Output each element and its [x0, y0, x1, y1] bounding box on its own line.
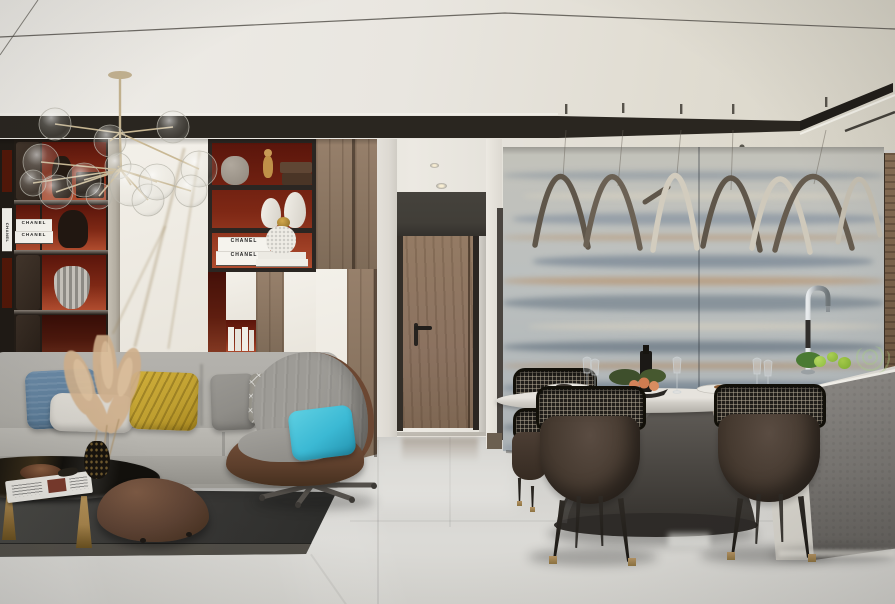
lower-wood — [256, 272, 284, 354]
dining-chair-front-left — [536, 386, 646, 572]
produce-cabbage — [852, 346, 892, 374]
ottoman-foot — [140, 538, 146, 543]
chair-leg — [550, 500, 567, 561]
door-floor-reflection — [402, 438, 478, 462]
chair-leg — [616, 498, 633, 563]
decor-box-stack — [282, 173, 312, 185]
lower-marble — [284, 272, 316, 354]
book-spine-row — [228, 327, 234, 351]
door-handle-lever — [414, 326, 432, 330]
magazine-photo — [47, 478, 66, 493]
chair-leg — [796, 496, 812, 559]
corner-baseboard — [487, 433, 502, 449]
decor-textured-vase — [266, 226, 296, 254]
ottoman-foot — [186, 532, 192, 537]
book-spine-row — [235, 329, 241, 351]
leg-tip — [530, 507, 535, 512]
leg-tip — [549, 556, 557, 564]
glass-globe-chandelier — [0, 55, 240, 235]
book-spine: CHANEL — [218, 237, 270, 252]
chair-body — [718, 414, 820, 502]
shelf-board — [14, 310, 108, 315]
door-stile-line — [468, 236, 470, 428]
door-jamb-wall — [377, 139, 397, 437]
magazine-text-lines — [12, 482, 43, 498]
ribbon-pendant-sculpture — [525, 130, 895, 280]
sofa-seat-seam — [222, 432, 225, 458]
leg-tip — [517, 501, 522, 506]
shelf-left-door-panel — [16, 255, 40, 310]
lower-red-niche — [208, 272, 226, 354]
cable-pins — [565, 97, 827, 114]
chair-body — [540, 416, 640, 504]
produce-lime — [814, 356, 826, 367]
hallway-spotlight — [430, 163, 439, 168]
decor-box-stack — [280, 162, 312, 173]
produce-lime — [827, 352, 838, 362]
door-header-panel — [397, 192, 486, 238]
door-frame-right — [479, 236, 486, 432]
chair-leg — [728, 498, 745, 557]
corner-trim-dark — [497, 208, 503, 440]
pampas-vase — [84, 441, 110, 479]
chair-leg-rear — [597, 496, 606, 546]
glass-globes — [20, 108, 217, 216]
hallway-spotlight — [436, 183, 447, 189]
book-spine-row — [249, 330, 254, 351]
leg-tip — [808, 554, 816, 562]
magazine-text-lines — [69, 476, 88, 490]
book-spine-row — [242, 327, 248, 351]
floor-reflection-bright — [668, 533, 710, 547]
pillow-teal — [287, 404, 357, 461]
leg-tip — [628, 558, 636, 566]
shelf-board — [14, 250, 108, 255]
chair-leg-rear — [573, 496, 583, 548]
bookcase-left-niche — [2, 258, 12, 308]
rug-border — [0, 543, 340, 556]
produce-apple — [838, 357, 851, 369]
decor-mannequin-body — [263, 156, 273, 178]
dining-chair-front-right — [714, 384, 826, 566]
book-stack — [256, 259, 308, 267]
lower-marble — [226, 272, 256, 320]
sofa-cushion-gap — [200, 364, 203, 426]
book-spine-label: CHANEL — [231, 252, 258, 258]
leg-tip — [727, 552, 735, 560]
wood-panel-seam — [352, 139, 355, 269]
book-spine-label: CHANEL — [231, 238, 258, 244]
wood-panel-upper — [316, 139, 377, 269]
interior-room-photo: CHANEL CHANEL CHANEL CHANEL CHANEL — [0, 0, 895, 604]
ribbon-loops — [535, 175, 880, 252]
